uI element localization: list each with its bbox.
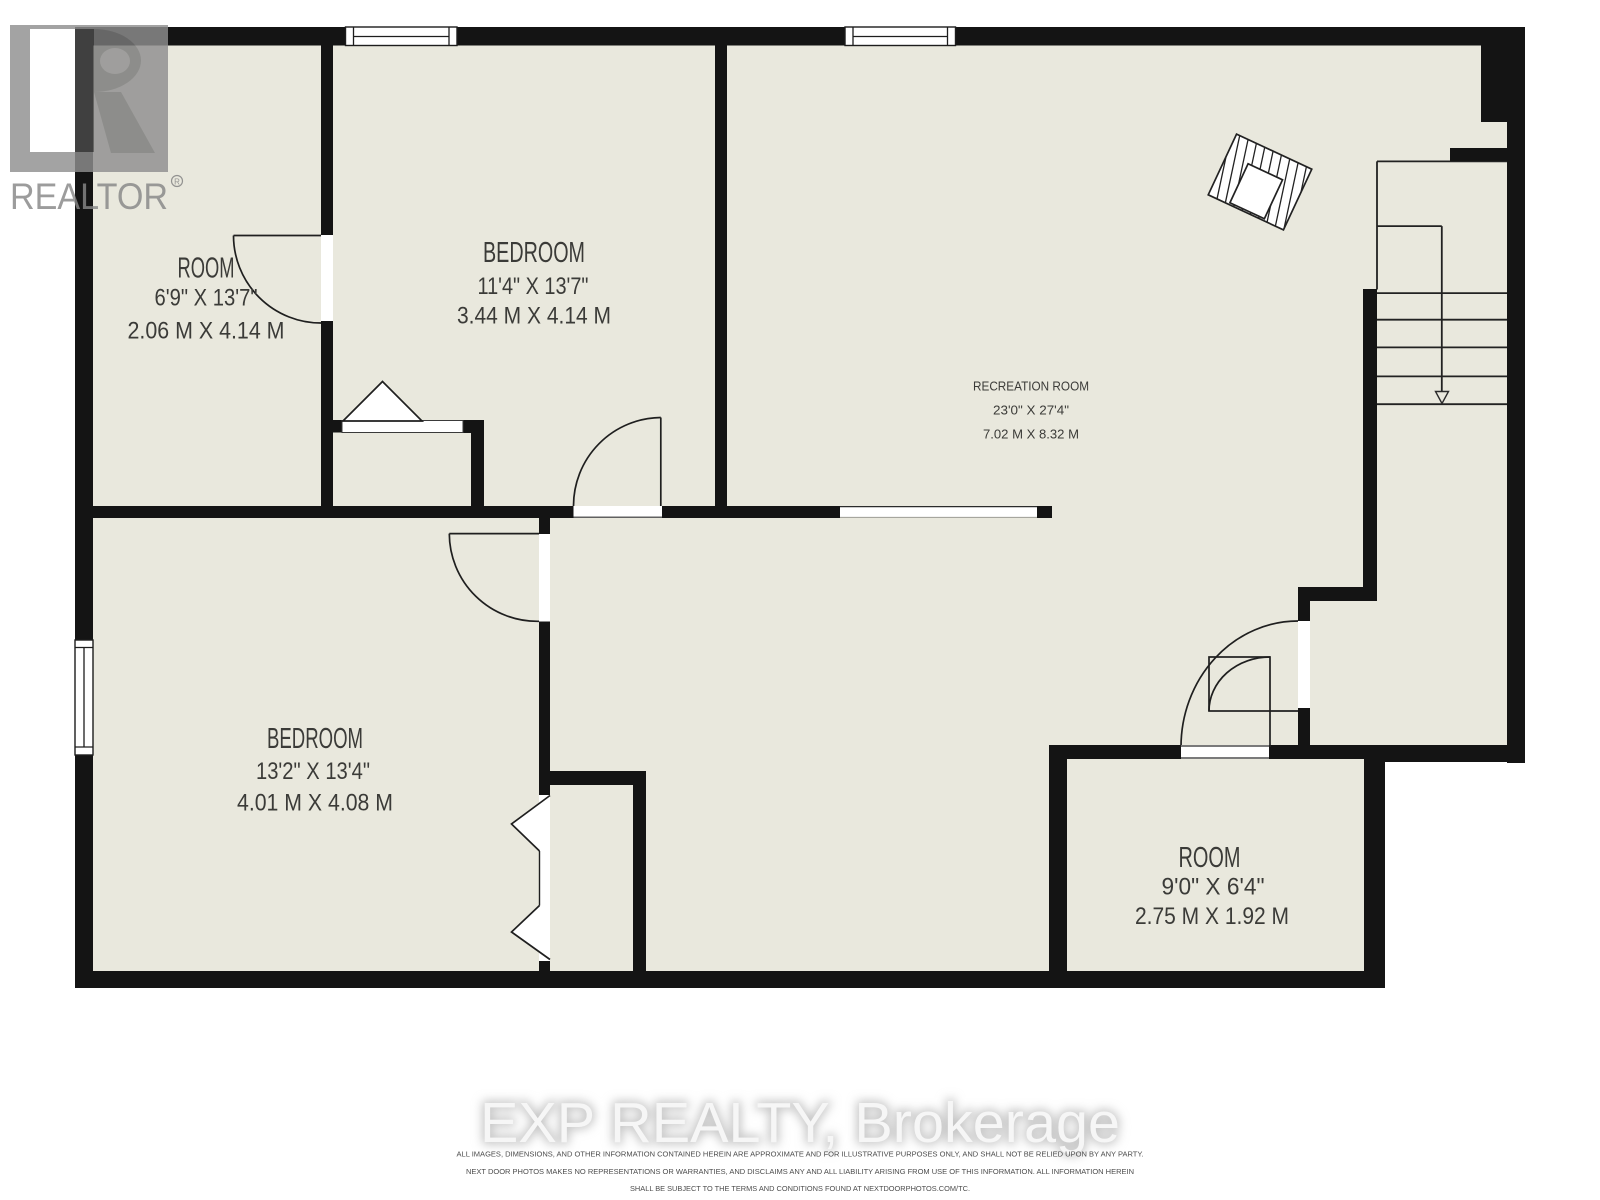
svg-text:13'2" X 13'4": 13'2" X 13'4" xyxy=(256,758,370,785)
svg-text:ROOM: ROOM xyxy=(1179,842,1241,874)
svg-text:7.02 M X 8.32 M: 7.02 M X 8.32 M xyxy=(983,427,1079,442)
svg-text:11'4" X 13'7": 11'4" X 13'7" xyxy=(478,273,589,300)
svg-text:ROOM: ROOM xyxy=(178,252,235,284)
svg-text:9'0" X 6'4": 9'0" X 6'4" xyxy=(1162,874,1265,901)
svg-text:RECREATION ROOM: RECREATION ROOM xyxy=(973,380,1089,394)
svg-text:4.01 M X 4.08 M: 4.01 M X 4.08 M xyxy=(237,790,393,817)
svg-text:23'0" X 27'4": 23'0" X 27'4" xyxy=(993,403,1069,418)
svg-text:6'9" X 13'7": 6'9" X 13'7" xyxy=(155,285,258,312)
svg-text:2.06 M X 4.14 M: 2.06 M X 4.14 M xyxy=(128,318,285,345)
svg-text:BEDROOM: BEDROOM xyxy=(267,723,363,755)
svg-text:NEXT DOOR PHOTOS MAKES NO REPR: NEXT DOOR PHOTOS MAKES NO REPRESENTATION… xyxy=(466,1167,1134,1176)
svg-text:3.44 M X 4.14 M: 3.44 M X 4.14 M xyxy=(457,303,611,330)
svg-text:BEDROOM: BEDROOM xyxy=(483,237,585,269)
svg-text:ALL IMAGES, DIMENSIONS, AND OT: ALL IMAGES, DIMENSIONS, AND OTHER INFORM… xyxy=(457,1150,1144,1159)
svg-text:EXP REALTY, Brokerage: EXP REALTY, Brokerage xyxy=(480,1091,1120,1155)
svg-text:R: R xyxy=(174,178,180,187)
svg-text:REALTOR: REALTOR xyxy=(10,176,168,217)
svg-text:SHALL BE SUBJECT TO THE TERMS: SHALL BE SUBJECT TO THE TERMS AND CONDIT… xyxy=(630,1184,970,1193)
svg-text:2.75 M X 1.92 M: 2.75 M X 1.92 M xyxy=(1135,903,1289,930)
